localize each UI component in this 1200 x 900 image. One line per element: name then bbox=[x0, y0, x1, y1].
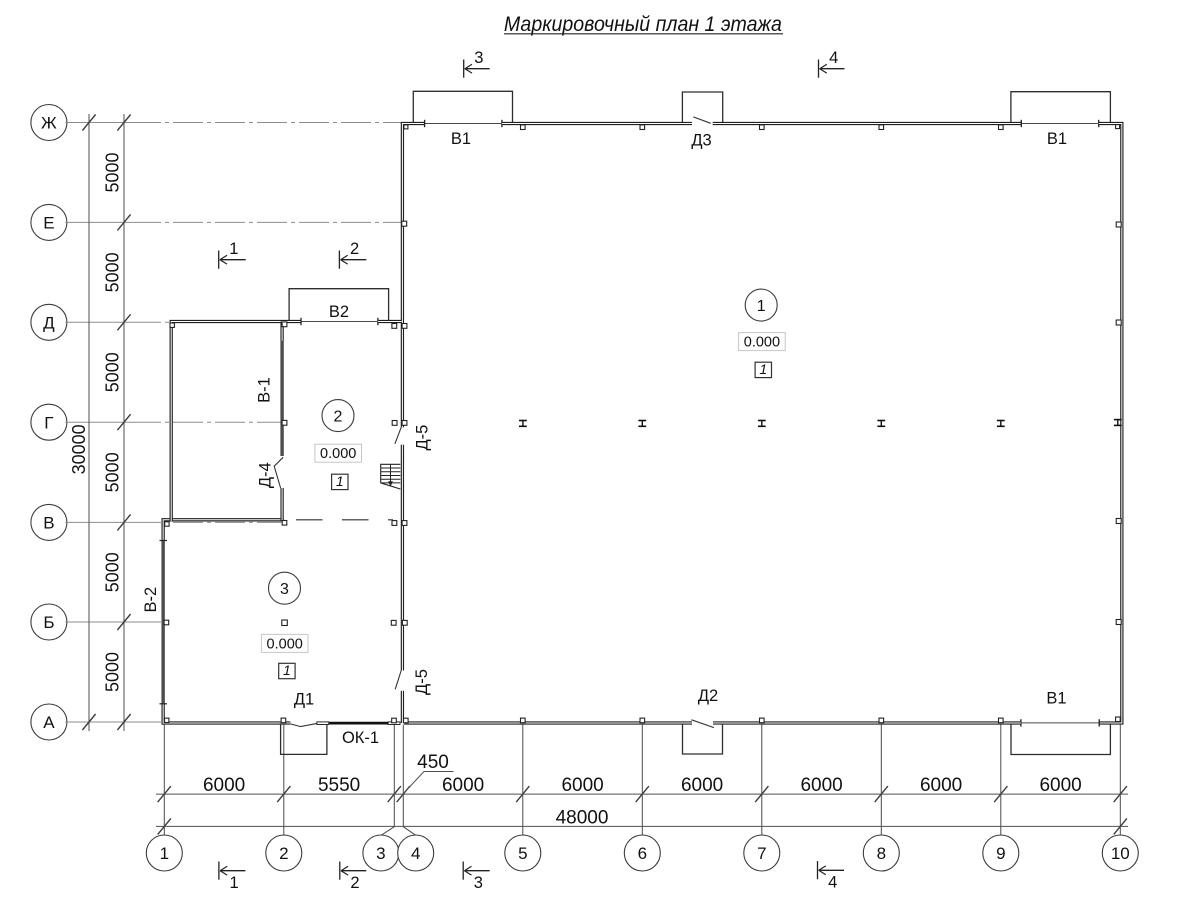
svg-text:9: 9 bbox=[996, 844, 1005, 863]
svg-text:1: 1 bbox=[230, 874, 239, 892]
svg-text:6000: 6000 bbox=[800, 775, 842, 796]
svg-text:1: 1 bbox=[336, 473, 344, 489]
svg-text:Е: Е bbox=[43, 214, 54, 233]
svg-text:Маркировочный план 1 этажа: Маркировочный план 1 этажа bbox=[504, 13, 782, 36]
svg-text:В1: В1 bbox=[1046, 690, 1066, 708]
svg-text:2: 2 bbox=[334, 408, 343, 425]
svg-text:4: 4 bbox=[828, 874, 837, 892]
svg-text:1: 1 bbox=[160, 844, 169, 863]
svg-text:Д-5: Д-5 bbox=[413, 669, 431, 695]
svg-text:7: 7 bbox=[757, 844, 766, 863]
svg-text:Д3: Д3 bbox=[691, 132, 711, 150]
svg-text:1: 1 bbox=[283, 662, 291, 678]
svg-text:10: 10 bbox=[1111, 844, 1130, 863]
svg-text:Д1: Д1 bbox=[294, 691, 314, 709]
svg-text:3: 3 bbox=[376, 844, 385, 863]
svg-text:5000: 5000 bbox=[102, 552, 122, 592]
svg-text:Д2: Д2 bbox=[698, 687, 718, 705]
svg-text:4: 4 bbox=[829, 49, 838, 67]
svg-text:ОК-1: ОК-1 bbox=[342, 729, 379, 747]
svg-text:2: 2 bbox=[350, 874, 359, 892]
svg-text:5000: 5000 bbox=[102, 252, 122, 292]
svg-text:2: 2 bbox=[279, 844, 288, 863]
svg-text:Д-5: Д-5 bbox=[414, 425, 432, 451]
svg-text:Б: Б bbox=[43, 613, 54, 632]
svg-text:0.000: 0.000 bbox=[744, 335, 780, 351]
svg-text:Г: Г bbox=[44, 413, 53, 432]
svg-text:0.000: 0.000 bbox=[320, 446, 356, 462]
svg-text:А: А bbox=[43, 713, 55, 732]
svg-text:30000: 30000 bbox=[69, 424, 89, 474]
svg-text:450: 450 bbox=[417, 752, 449, 773]
svg-text:В1: В1 bbox=[1047, 130, 1067, 148]
svg-text:В-1: В-1 bbox=[255, 377, 273, 403]
svg-text:6000: 6000 bbox=[1039, 775, 1081, 796]
svg-text:6000: 6000 bbox=[203, 775, 245, 796]
svg-text:1: 1 bbox=[229, 240, 238, 258]
svg-text:Д: Д bbox=[43, 313, 55, 332]
svg-text:0.000: 0.000 bbox=[267, 636, 303, 652]
svg-text:3: 3 bbox=[280, 581, 289, 598]
svg-text:В-2: В-2 bbox=[142, 587, 160, 613]
svg-text:1: 1 bbox=[757, 298, 766, 315]
svg-text:В1: В1 bbox=[451, 130, 471, 148]
svg-text:3: 3 bbox=[474, 874, 483, 892]
svg-text:5000: 5000 bbox=[102, 652, 122, 692]
svg-text:В2: В2 bbox=[329, 303, 349, 321]
svg-text:5000: 5000 bbox=[102, 452, 122, 492]
svg-text:6: 6 bbox=[638, 844, 647, 863]
svg-text:5000: 5000 bbox=[102, 352, 122, 392]
svg-text:2: 2 bbox=[350, 240, 359, 258]
svg-text:6000: 6000 bbox=[561, 775, 603, 796]
svg-text:Ж: Ж bbox=[41, 114, 57, 133]
svg-text:1: 1 bbox=[759, 361, 767, 377]
svg-text:5550: 5550 bbox=[318, 775, 360, 796]
svg-text:3: 3 bbox=[474, 49, 483, 67]
svg-text:6000: 6000 bbox=[920, 775, 962, 796]
svg-text:8: 8 bbox=[877, 844, 886, 863]
svg-text:5: 5 bbox=[518, 844, 527, 863]
svg-text:5000: 5000 bbox=[102, 152, 122, 192]
svg-text:4: 4 bbox=[411, 844, 420, 863]
svg-text:В: В bbox=[43, 514, 54, 533]
svg-text:Д-4: Д-4 bbox=[257, 462, 275, 488]
svg-text:48000: 48000 bbox=[556, 807, 609, 828]
svg-text:6000: 6000 bbox=[681, 775, 723, 796]
svg-text:6000: 6000 bbox=[442, 775, 484, 796]
